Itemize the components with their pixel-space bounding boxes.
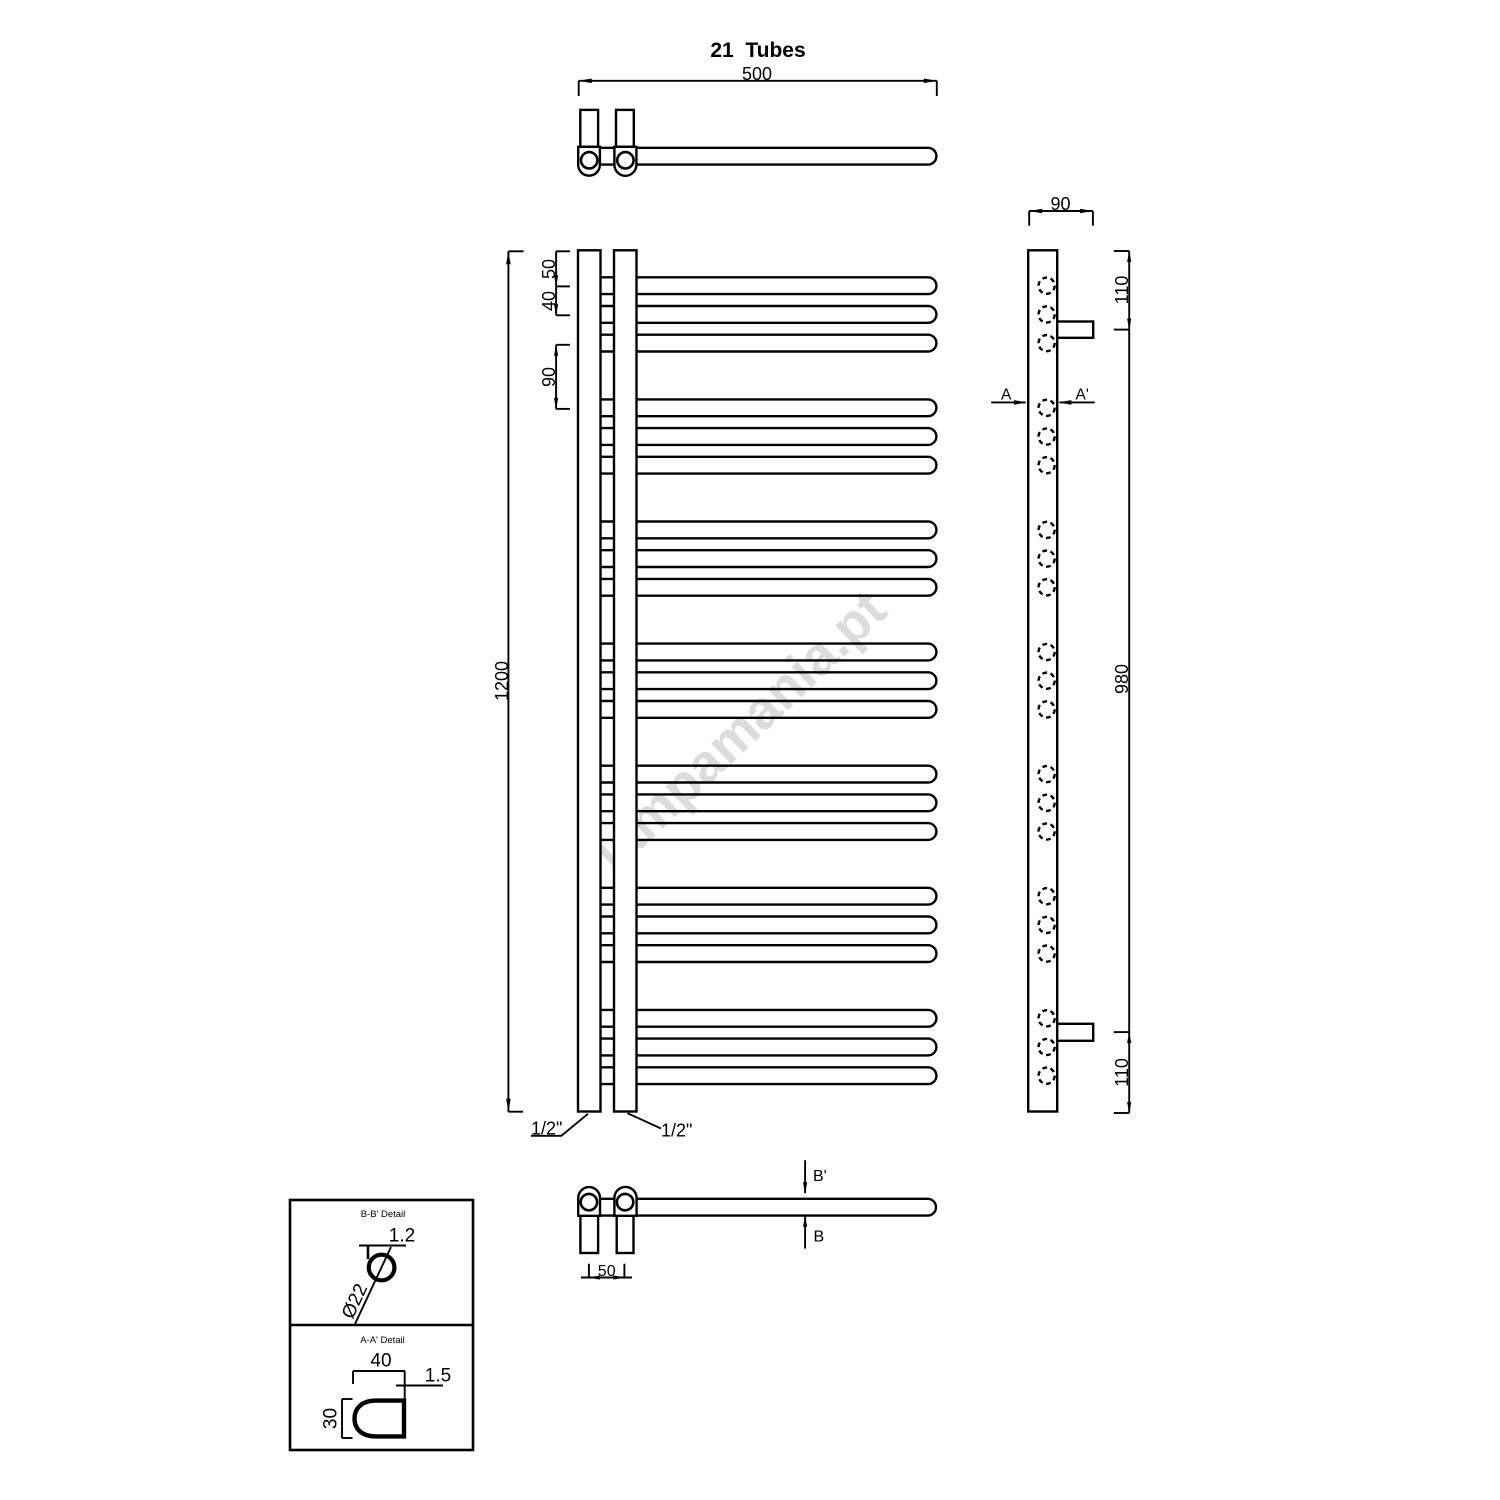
svg-text:500: 500 — [742, 64, 772, 84]
svg-text:A': A' — [1076, 387, 1089, 404]
svg-text:1/2": 1/2" — [661, 1121, 692, 1141]
svg-text:50: 50 — [539, 259, 559, 279]
svg-text:A: A — [1001, 387, 1012, 404]
svg-text:40: 40 — [370, 1351, 391, 1372]
svg-text:1.2: 1.2 — [389, 1226, 415, 1247]
svg-text:B': B' — [813, 1168, 827, 1185]
svg-text:40: 40 — [539, 291, 559, 311]
svg-text:110: 110 — [1112, 1058, 1132, 1087]
svg-text:980: 980 — [1112, 664, 1132, 694]
svg-text:1200: 1200 — [492, 661, 512, 701]
svg-text:110: 110 — [1112, 276, 1132, 305]
svg-text:B: B — [814, 1229, 825, 1246]
svg-text:21 Tubes: 21 Tubes — [710, 39, 805, 62]
svg-text:30: 30 — [321, 1408, 342, 1429]
svg-text:90: 90 — [1050, 194, 1070, 214]
svg-text:Ø22: Ø22 — [338, 1281, 372, 1322]
svg-text:B-B' Detail: B-B' Detail — [361, 1209, 406, 1220]
svg-text:1.5: 1.5 — [425, 1366, 451, 1387]
svg-text:50: 50 — [598, 1263, 616, 1280]
svg-text:A-A' Detail: A-A' Detail — [360, 1335, 405, 1346]
svg-text:90: 90 — [539, 367, 559, 387]
